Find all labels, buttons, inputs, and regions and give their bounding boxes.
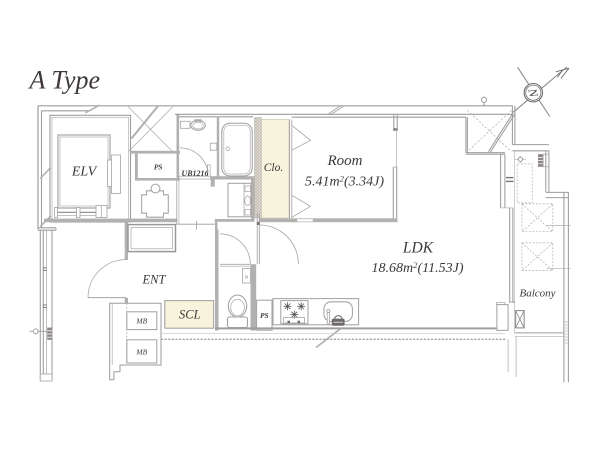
svg-text:5.41m2(3.34J): 5.41m2(3.34J) bbox=[305, 173, 384, 189]
svg-text:ELV: ELV bbox=[71, 165, 98, 180]
svg-text:MB: MB bbox=[135, 348, 147, 357]
svg-text:Room: Room bbox=[327, 153, 363, 169]
svg-text:ENT: ENT bbox=[142, 273, 167, 287]
svg-text:Balcony: Balcony bbox=[519, 288, 555, 300]
svg-text:SCL: SCL bbox=[179, 308, 201, 322]
svg-text:18.68m2(11.53J): 18.68m2(11.53J) bbox=[372, 260, 464, 276]
svg-text:UB1216: UB1216 bbox=[181, 169, 208, 178]
svg-text:A Type: A Type bbox=[28, 66, 101, 95]
svg-text:PS: PS bbox=[154, 164, 162, 172]
svg-text:PS: PS bbox=[260, 312, 268, 320]
svg-text:LDK: LDK bbox=[402, 240, 434, 257]
svg-text:MB: MB bbox=[135, 317, 147, 326]
svg-text:Clo.: Clo. bbox=[264, 162, 284, 174]
